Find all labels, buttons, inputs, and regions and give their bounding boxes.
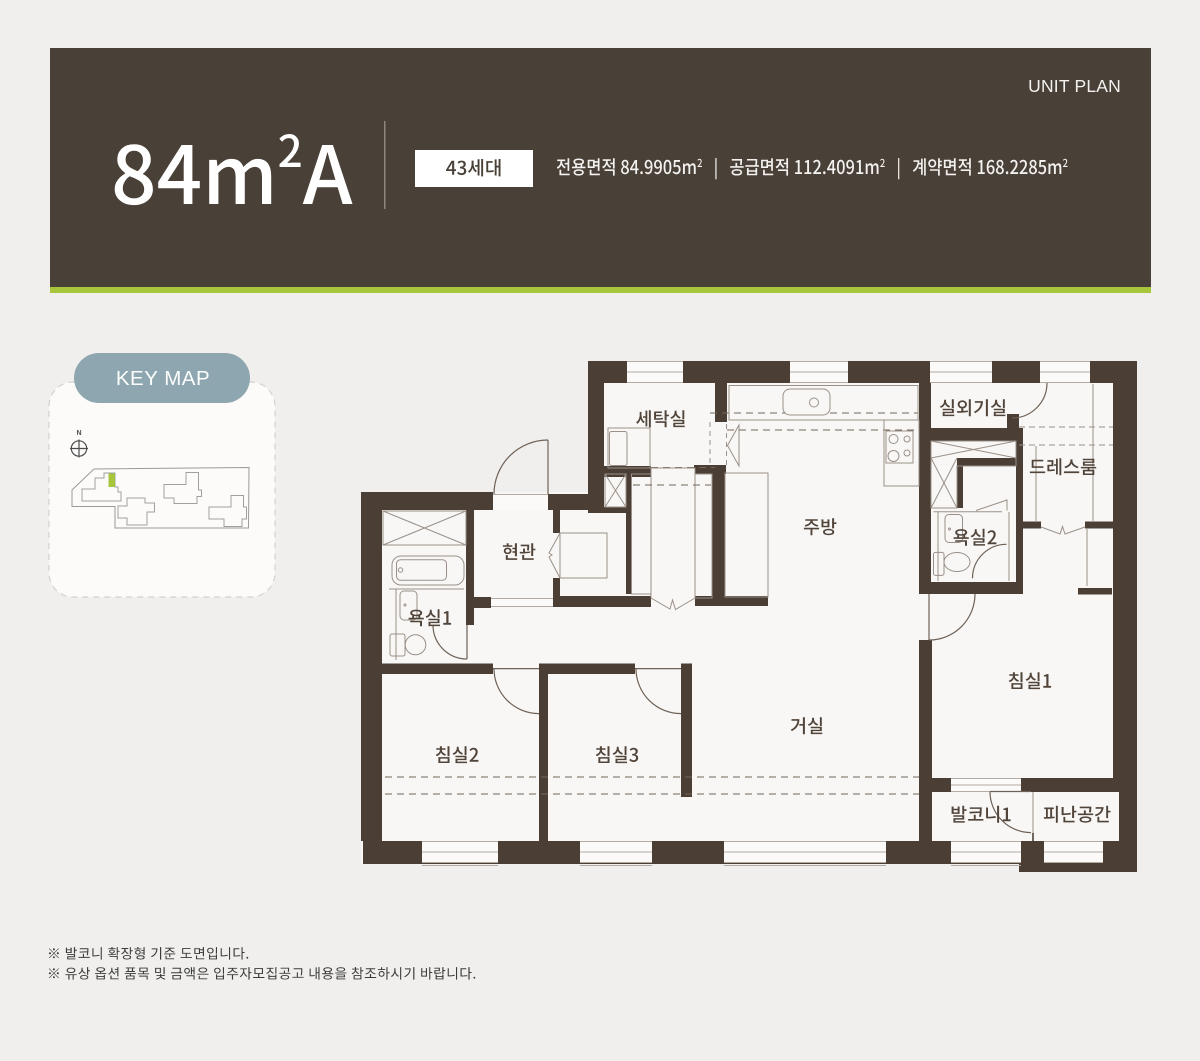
svg-text:N: N (76, 430, 81, 437)
svg-text:UNIT PLAN: UNIT PLAN (1028, 76, 1121, 96)
svg-text:KEY MAP: KEY MAP (116, 367, 210, 390)
